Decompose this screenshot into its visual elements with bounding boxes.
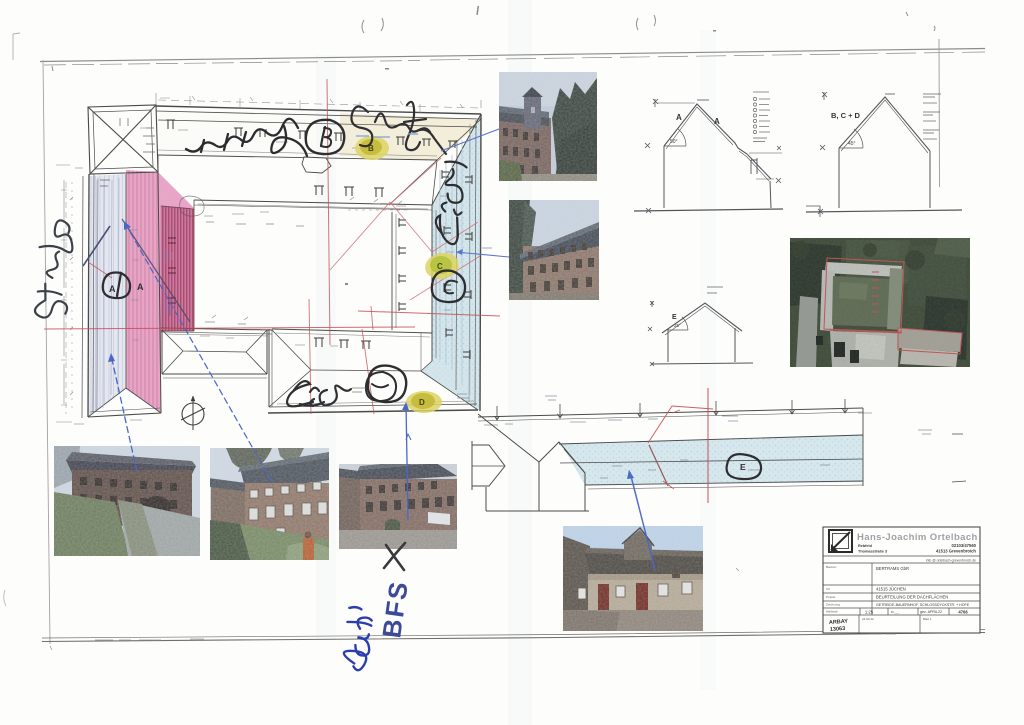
svg-text:C: C [437, 262, 443, 271]
svg-text:BEURTEILUNG DER DACHFLÄCHEN: BEURTEILUNG DER DACHFLÄCHEN [876, 595, 948, 600]
svg-text:E: E [740, 462, 746, 472]
svg-text:41513 Grevenbroich: 41513 Grevenbroich [936, 549, 976, 554]
svg-text:B, C + D: B, C + D [831, 111, 861, 120]
svg-text:Rebfeld: Rebfeld [858, 544, 873, 548]
svg-text:Maßstab: Maßstab [826, 610, 838, 614]
svg-text:gez. APRIL22: gez. APRIL22 [920, 610, 942, 614]
svg-text:A: A [137, 282, 144, 292]
svg-text:Ort: Ort [826, 587, 830, 591]
svg-text:50°: 50° [670, 139, 678, 145]
svg-text:41515 JÜCHEN: 41515 JÜCHEN [876, 587, 906, 592]
svg-text:GETREIDE-BAUERNHOF, SCHLOSSDYC: GETREIDE-BAUERNHOF, SCHLOSSDYCKSTR. + HO… [876, 603, 970, 607]
svg-text:02103/47560: 02103/47560 [952, 543, 977, 548]
svg-text:BERTRAMS GbR: BERTRAMS GbR [876, 566, 909, 571]
svg-text:13063: 13063 [830, 626, 846, 633]
svg-text:A: A [676, 113, 682, 122]
svg-text:Thomasstraße 3: Thomasstraße 3 [858, 550, 887, 554]
svg-text:Zeichnung: Zeichnung [826, 603, 840, 607]
svg-text:1:25: 1:25 [865, 610, 874, 615]
svg-text:24.04.22: 24.04.22 [862, 617, 874, 621]
svg-text:Bauherr: Bauherr [826, 565, 837, 569]
svg-text:info @ ortelbach-grevenbroich.: info @ ortelbach-grevenbroich.de [926, 559, 976, 563]
svg-text:Blatt 1: Blatt 1 [923, 617, 932, 621]
svg-text:A: A [109, 284, 116, 294]
svg-text:A: A [714, 117, 720, 126]
svg-text:Projekt: Projekt [826, 595, 836, 599]
svg-text:Hans-Joachim Ortelbach: Hans-Joachim Ortelbach [857, 532, 978, 543]
svg-text:25°: 25° [674, 323, 681, 328]
svg-text:M ___: M ___ [891, 610, 900, 614]
svg-text:45°: 45° [848, 141, 856, 147]
svg-text:4766: 4766 [958, 610, 968, 615]
svg-text:E: E [672, 314, 677, 321]
svg-text:D: D [419, 398, 425, 407]
